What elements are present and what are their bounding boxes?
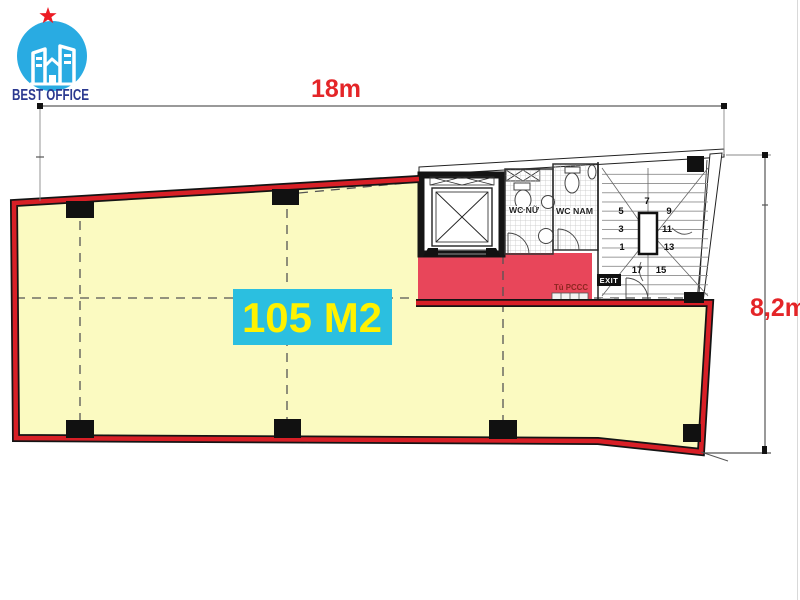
stair-newel: [639, 213, 657, 254]
sink-icon: [539, 229, 554, 244]
column: [274, 419, 301, 438]
step-number: 5: [618, 206, 624, 217]
wc-male-label: WC NAM: [556, 207, 593, 216]
wc-female-label: WC NỮ: [509, 206, 539, 215]
area-label: 105 M2: [233, 289, 392, 345]
brand-logo: BEST OFFICE: [12, 7, 89, 104]
wc-female-room: WC NỮ: [505, 169, 555, 254]
step-number: 1: [619, 242, 625, 253]
area-label-text: 105 M2: [242, 294, 382, 341]
floor-plan-page: WC NỮ WC NAM: [0, 0, 800, 600]
step-number: 3: [618, 224, 623, 235]
column: [66, 201, 94, 218]
step-number: 11: [662, 224, 673, 235]
height-dimension-label: 8,2m: [750, 294, 800, 322]
floor-plan-drawing: WC NỮ WC NAM: [0, 0, 800, 600]
urinal-icon: [588, 165, 596, 179]
dimension-tick: [762, 446, 767, 454]
fire-cabinet-label: Tủ PCCC: [554, 282, 588, 292]
step-number: 13: [664, 242, 675, 253]
wc-male-room: WC NAM: [553, 164, 598, 250]
dimension-right: 8,2m: [703, 152, 800, 454]
fire-cabinet: Tủ PCCC: [552, 282, 588, 301]
logo-star-icon: [39, 7, 56, 23]
toilet-icon: [565, 167, 580, 193]
column: [489, 420, 517, 439]
elevator-car-icon: [432, 188, 492, 246]
column: [683, 424, 701, 442]
step-number: 17: [632, 265, 643, 276]
column: [687, 156, 704, 172]
column: [66, 420, 94, 438]
step-number: 9: [666, 206, 671, 217]
step-number: 15: [656, 265, 667, 276]
column: [684, 292, 704, 303]
staircase: 1 3 5 7 9 11 13 15 17 EXIT: [592, 153, 722, 304]
step-number: 7: [644, 196, 649, 207]
elevator: [421, 175, 502, 257]
exit-badge: EXIT: [597, 274, 621, 286]
dimension-tick: [762, 152, 768, 158]
width-dimension-label: 18m: [311, 75, 361, 103]
brand-name: BEST OFFICE: [12, 87, 89, 104]
column: [272, 189, 299, 205]
floor-plan: WC NỮ WC NAM: [14, 149, 728, 461]
dimension-tick: [721, 103, 727, 109]
exit-label: EXIT: [600, 276, 619, 285]
